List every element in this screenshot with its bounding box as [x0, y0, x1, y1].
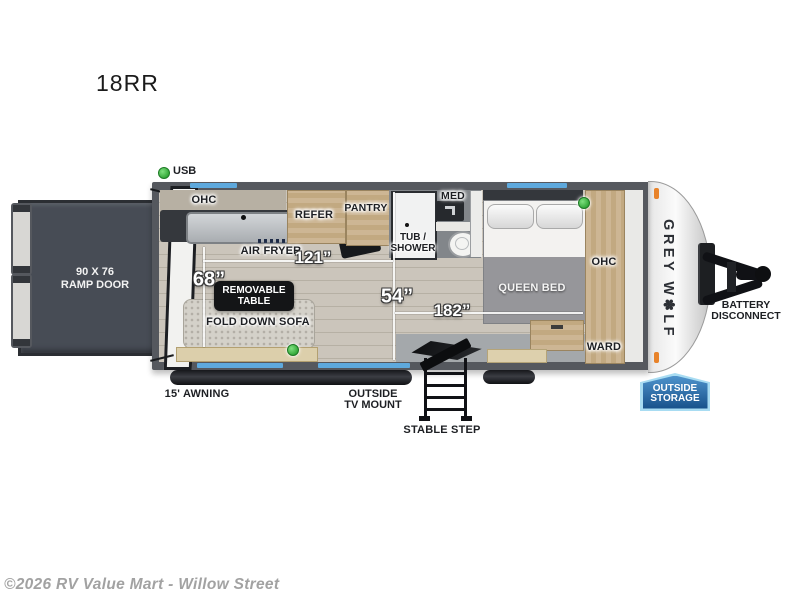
battery-disconnect-label: BATTERY DISCONNECT — [711, 300, 780, 322]
pantry-cabinet — [346, 190, 390, 246]
bedroom-ohc-label: OHC — [591, 256, 616, 268]
tv-mount-label: OUTSIDE TV MOUNT — [344, 389, 401, 411]
pillow — [536, 204, 583, 229]
window-bottom-left — [197, 363, 283, 368]
ramp-door-label: 90 X 76 RAMP DOOR — [61, 266, 129, 292]
removable-table: REMOVABLE TABLE — [214, 281, 294, 311]
hinge-cap — [13, 276, 30, 283]
dim-68-label: 68” — [193, 269, 225, 292]
hinge-cap — [13, 205, 30, 212]
step-rung — [424, 408, 467, 411]
brand-logo-text: GREY W✽LF — [660, 219, 676, 339]
interior-led-icon — [287, 344, 299, 356]
bedroom-led-icon — [578, 197, 590, 209]
step-foot — [419, 416, 430, 421]
refer-label: REFER — [295, 209, 333, 221]
window-top-left — [190, 183, 237, 188]
hitch-coupler-knob — [755, 266, 771, 282]
ramp-hinge-top — [11, 203, 32, 275]
removable-table-label: REMOVABLE TABLE — [222, 285, 285, 307]
hinge-cap — [13, 266, 30, 273]
hitch-jack — [727, 262, 736, 292]
outside-storage-badge-inner: OUTSIDE STORAGE — [643, 376, 708, 409]
tub-shower-label: TUB / SHOWER — [391, 232, 436, 254]
queen-bed-label: QUEEN BED — [498, 282, 565, 294]
brand-logo: GREY W✽LF — [646, 211, 690, 347]
outside-storage-badge: OUTSIDE STORAGE — [640, 373, 710, 411]
dim-line-54 — [393, 192, 395, 360]
ramp-hinge-bottom — [11, 274, 32, 348]
toilet-seat — [455, 237, 469, 250]
window-bottom-right — [318, 363, 410, 368]
clearance-marker-icon — [654, 188, 659, 199]
dim-182-label: 182” — [434, 301, 471, 321]
step-rung — [424, 384, 467, 387]
cooktop-knobs — [258, 239, 288, 243]
queen-bed — [483, 200, 587, 324]
window-top-right — [507, 183, 567, 188]
dim-121-label: 121” — [295, 248, 332, 268]
ward-label: WARD — [587, 341, 621, 353]
floorplan-model-title: 18RR — [96, 70, 159, 97]
bed-bench — [487, 349, 547, 363]
drawer-handle — [551, 325, 563, 329]
outside-storage-label: OUTSIDE STORAGE — [650, 384, 699, 409]
pantry-label: PANTRY — [344, 202, 387, 214]
faucet-icon — [241, 215, 246, 220]
bath-partition — [470, 191, 482, 257]
clearance-marker-icon — [654, 352, 659, 363]
awning-roll-short — [483, 370, 535, 384]
dim-line-182 — [395, 312, 583, 314]
dealer-watermark: ©2026 RV Value Mart - Willow Street — [4, 576, 279, 594]
step-foot — [461, 416, 472, 421]
med-label: MED — [441, 190, 465, 202]
stable-step-label: STABLE STEP — [403, 424, 480, 436]
step-rung — [424, 372, 467, 375]
bath-vanity-sink — [436, 201, 464, 221]
usb-led-icon — [158, 167, 170, 179]
step-rung — [424, 396, 467, 399]
kitchen-ohc-label: OHC — [191, 194, 216, 206]
floorplan-canvas: 18RR USB 90 X 76 RAMP DOOR — [0, 0, 800, 600]
vanity-faucet-icon — [452, 206, 455, 215]
air-fryer-label: AIR FRYER — [241, 245, 302, 257]
hinge-cap — [13, 339, 30, 346]
awning-roll — [170, 370, 412, 385]
pillow — [487, 204, 534, 229]
usb-label: USB — [173, 165, 196, 177]
dim-line-68 — [203, 247, 205, 347]
wardrobe-cabinet — [585, 190, 625, 364]
fold-down-sofa-label: FOLD DOWN SOFA — [206, 316, 310, 328]
awning-label: 15' AWNING — [165, 388, 230, 400]
dim-54-label: 54” — [381, 286, 413, 309]
front-interior-strip — [623, 190, 643, 362]
shower-drain-icon — [405, 223, 409, 227]
under-bed-drawers — [530, 320, 584, 351]
